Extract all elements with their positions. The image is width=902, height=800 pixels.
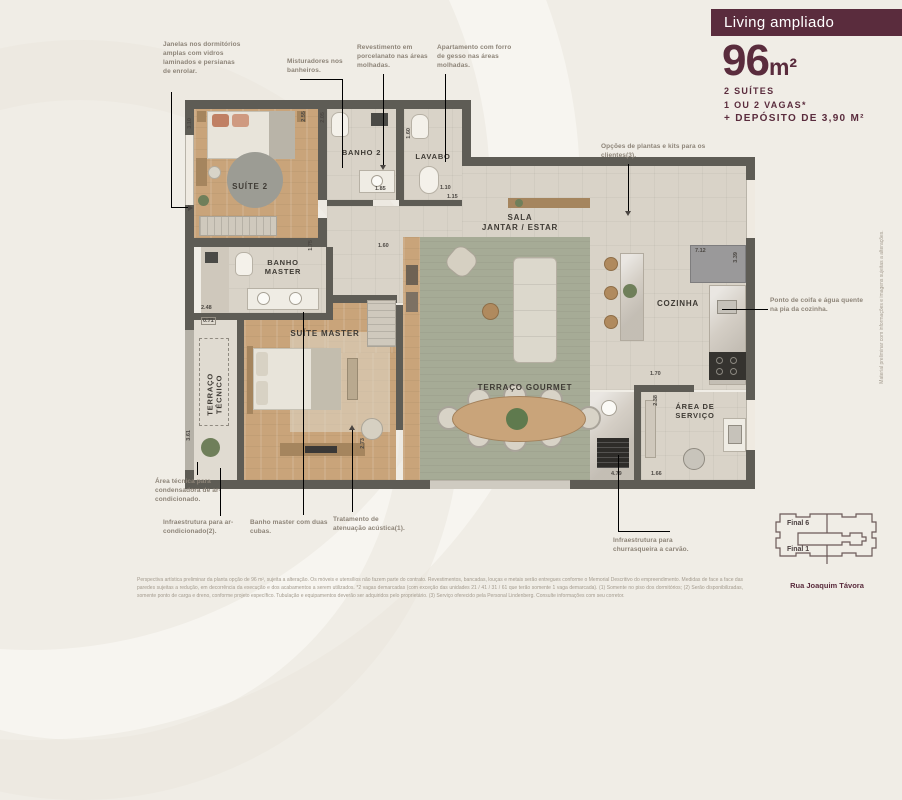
kitchen-sink xyxy=(717,300,737,314)
stool xyxy=(604,315,618,329)
dimension: 1.85 xyxy=(375,186,386,192)
room-label-suite-master: SUÍTE MASTER xyxy=(265,329,385,339)
callout-forro-gesso: Apartamento com forro de gesso nas áreas… xyxy=(437,43,515,70)
basin xyxy=(289,292,302,305)
dimension: 2.48 xyxy=(201,305,212,311)
callout-line xyxy=(445,74,446,162)
room-label-line: BANHO xyxy=(245,258,321,267)
shower-head xyxy=(371,113,388,126)
callout-line xyxy=(618,455,670,532)
room-label-banho-master: BANHO MASTER xyxy=(245,258,321,277)
wall-art xyxy=(406,292,418,312)
plant xyxy=(515,199,523,207)
suite2-wardrobe xyxy=(199,216,277,236)
room-label-line: ÁREA DE xyxy=(655,402,735,411)
keyplan-unit-final1: Final 1 xyxy=(787,546,809,553)
side-table xyxy=(482,303,499,320)
area-value: 96 xyxy=(722,36,769,85)
burner xyxy=(716,357,723,364)
suite2-throw xyxy=(269,111,295,159)
terrace-railing xyxy=(185,330,194,470)
window-servico xyxy=(746,400,755,450)
washer xyxy=(683,448,705,470)
wall-segment xyxy=(318,218,327,247)
dimension: 0.71 xyxy=(201,317,216,325)
side-note: Material preliminar com informações e im… xyxy=(879,221,889,393)
wall-segment xyxy=(396,109,404,200)
callout-line xyxy=(197,462,198,475)
shower-head xyxy=(205,252,218,263)
stool xyxy=(604,257,618,271)
dimension: 2.73 xyxy=(360,438,366,449)
callout-line xyxy=(171,92,191,208)
wall-art xyxy=(406,265,418,285)
suite2-rug xyxy=(227,152,283,208)
keyplan-diagram xyxy=(770,506,884,572)
spec-suites: 2 SUÍTES xyxy=(724,86,774,96)
room-label-terraco-tecnico: TERRAÇO TÉCNICO xyxy=(206,354,225,434)
plan-title-badge: Living ampliado xyxy=(711,9,902,36)
area-unit: m² xyxy=(769,54,797,80)
callout-line xyxy=(352,430,353,512)
area-figure: 96m² xyxy=(722,36,797,86)
callout-line xyxy=(722,309,768,310)
dimension: 3.61 xyxy=(186,430,192,441)
dimension: 7.12 xyxy=(695,248,706,254)
room-label-line: JANTAR / ESTAR xyxy=(465,223,575,233)
callout-janelas: Janelas nos dormitórios amplas com vidro… xyxy=(163,40,243,76)
wall-segment xyxy=(634,385,694,392)
wall-segment xyxy=(194,238,318,247)
suite2-pillow xyxy=(212,114,229,127)
toilet xyxy=(411,114,429,139)
tv xyxy=(305,446,337,453)
basin xyxy=(257,292,270,305)
burner xyxy=(730,368,737,375)
master-wardrobe xyxy=(367,300,396,347)
wall-segment xyxy=(237,320,244,480)
callout-arrow xyxy=(188,205,193,211)
callout-line xyxy=(300,79,343,168)
armchair xyxy=(361,418,383,440)
burner xyxy=(716,368,723,375)
plant xyxy=(623,284,637,298)
dimension: 1.60 xyxy=(378,243,389,249)
floorplan-page: { "header": { "badge": "Living ampliado"… xyxy=(0,0,902,628)
keyplan-street: Rua Joaquim Távora xyxy=(768,581,886,590)
laundry-sink xyxy=(728,425,742,444)
dimension: 1.70 xyxy=(650,371,661,377)
dimension: 1.60 xyxy=(406,128,412,139)
room-label-line: TÉCNICO xyxy=(215,354,224,434)
callout-banho-master: Banho master com duas cubas. xyxy=(250,518,330,536)
sofa xyxy=(513,257,557,363)
callout-arrow xyxy=(349,425,355,430)
dimension: 1.10 xyxy=(440,185,451,191)
room-label-line: TERRAÇO xyxy=(206,354,215,434)
suite2-desk xyxy=(196,158,207,186)
cooktop xyxy=(709,352,746,380)
callout-line xyxy=(220,468,221,516)
nightstand xyxy=(197,111,206,122)
wall-segment xyxy=(399,200,462,206)
plant xyxy=(198,195,209,206)
callout-opcoes: Opções de plantas e kits para os cliente… xyxy=(601,142,709,160)
callout-misturadores: Misturadores nos banheiros. xyxy=(287,57,351,75)
room-label-cozinha: COZINHA xyxy=(640,299,716,309)
dimension: 1.75 xyxy=(308,240,314,251)
wall-segment xyxy=(462,100,471,166)
lavabo-basin xyxy=(419,166,439,194)
suite2-pillow xyxy=(232,114,249,127)
keyplan-unit-final6: Final 6 xyxy=(787,520,809,527)
room-label-lavabo: LAVABO xyxy=(404,152,462,161)
dimension: 2.38 xyxy=(653,395,659,406)
bbq-sink xyxy=(601,400,617,416)
plant xyxy=(201,438,220,457)
callout-line xyxy=(628,164,629,212)
legal-disclaimer: Perspectiva artística preliminar da plan… xyxy=(137,577,743,600)
room-label-terraco-gourmet: TERRAÇO GOURMET xyxy=(445,383,605,393)
table-plant xyxy=(506,408,528,430)
wall-segment xyxy=(396,305,403,430)
dimension: 1.15 xyxy=(447,194,458,200)
pillow xyxy=(256,352,268,376)
callout-coifa: Ponto de coifa e água quente na pia da c… xyxy=(770,296,868,314)
callout-arrow xyxy=(380,165,386,170)
blanket xyxy=(311,348,341,410)
burner xyxy=(730,357,737,364)
callout-arrow xyxy=(625,211,631,216)
room-label-line: MASTER xyxy=(245,267,321,276)
room-label-area-servico: ÁREA DE SERVIÇO xyxy=(655,402,735,421)
wall-segment xyxy=(327,200,373,206)
callout-churrasqueira: Infraestrutura para churrasqueira a carv… xyxy=(613,536,699,554)
callout-line xyxy=(383,74,384,166)
bench xyxy=(347,358,358,400)
room-label-line: SALA xyxy=(465,213,575,223)
window-sala xyxy=(746,180,755,238)
wall-segment xyxy=(326,247,333,320)
dimension: 3.39 xyxy=(733,252,739,263)
pillow xyxy=(256,381,268,405)
terrace-glass xyxy=(430,480,570,489)
desk-chair xyxy=(208,166,221,179)
stool xyxy=(604,286,618,300)
callout-acustica: Tratamento de atenuação acústica(1). xyxy=(333,515,409,533)
callout-revestimento: Revestimento em porcelanato nas áreas mo… xyxy=(357,43,429,70)
callout-line xyxy=(303,312,304,515)
room-label-suite2: SUÍTE 2 xyxy=(215,182,285,192)
room-label-sala: SALA JANTAR / ESTAR xyxy=(465,213,575,233)
room-label-line: SERVIÇO xyxy=(655,411,735,420)
